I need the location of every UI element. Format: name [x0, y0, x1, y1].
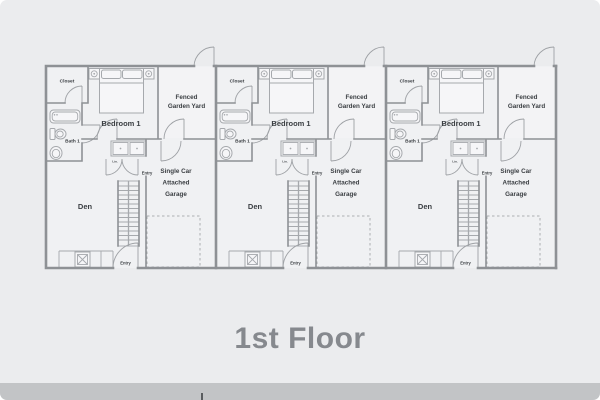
footer-artifact-mark — [201, 393, 203, 400]
closet-label: Closet — [400, 79, 415, 85]
yard-label-line2: Garden Yard — [338, 103, 375, 110]
bath-label: Bath 1 — [65, 139, 80, 145]
bedroom-label: Bedroom 1 — [101, 119, 140, 128]
bath-label: Bath 1 — [235, 139, 250, 145]
utility-tag-label: Lin. — [282, 160, 287, 164]
den-label: Den — [418, 202, 433, 211]
yard-label-line1: Fenced — [515, 94, 537, 101]
garage-label-line2: Attached — [333, 180, 360, 187]
closet-label: Closet — [60, 79, 75, 85]
garage-label-line2: Attached — [503, 180, 530, 187]
garage-label-line1: Single Car — [330, 168, 362, 175]
entry-lower-label: Entry — [120, 261, 131, 266]
garage-label-line3: Garage — [165, 191, 187, 198]
entry-lower-label: Entry — [460, 261, 471, 266]
yard-label-line1: Fenced — [175, 94, 197, 101]
floor-title: 1st Floor — [0, 322, 600, 356]
page: Closet Bath 1 Bedroom 1 Fenced Garden Ya… — [0, 0, 600, 400]
utility-tag-label: Lin. — [452, 160, 457, 164]
bedroom-label: Bedroom 1 — [441, 119, 480, 128]
den-label: Den — [248, 202, 263, 211]
bedroom-label: Bedroom 1 — [271, 119, 310, 128]
garage-label-line3: Garage — [505, 191, 527, 198]
den-label: Den — [78, 202, 93, 211]
closet-label: Closet — [230, 79, 245, 85]
garage-label-line2: Attached — [163, 180, 190, 187]
garage-label-line1: Single Car — [160, 168, 192, 175]
floorplan-drawing: Closet Bath 1 Bedroom 1 Fenced Garden Ya… — [44, 40, 558, 270]
bath-label: Bath 1 — [405, 139, 420, 145]
garage-label-line1: Single Car — [500, 168, 532, 175]
yard-label-line2: Garden Yard — [508, 103, 545, 110]
footer-bar — [0, 383, 600, 400]
utility-tag-label: Lin. — [112, 160, 117, 164]
yard-label-line2: Garden Yard — [168, 103, 205, 110]
garage-label-line3: Garage — [335, 191, 357, 198]
yard-label-line1: Fenced — [345, 94, 367, 101]
entry-lower-label: Entry — [290, 261, 301, 266]
entry-upper-label: Entry — [312, 171, 323, 176]
entry-upper-label: Entry — [142, 171, 153, 176]
entry-upper-label: Entry — [482, 171, 493, 176]
